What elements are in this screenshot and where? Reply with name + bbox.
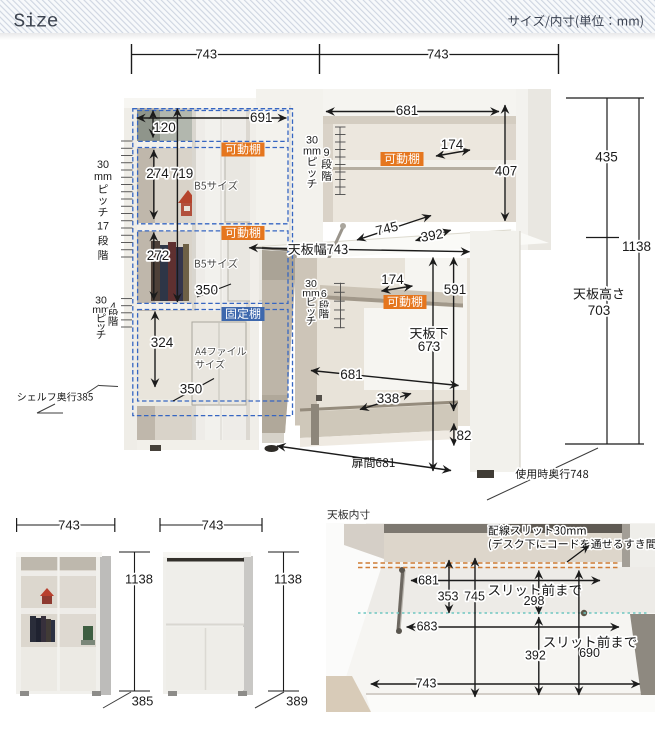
- svg-text:743: 743: [202, 518, 224, 533]
- svg-text:mm: mm: [303, 146, 321, 158]
- svg-text:298: 298: [524, 594, 545, 608]
- svg-text:120: 120: [153, 120, 176, 135]
- svg-text:435: 435: [595, 150, 618, 165]
- svg-text:82: 82: [456, 428, 471, 443]
- svg-text:6: 6: [321, 288, 327, 300]
- svg-text:389: 389: [286, 694, 308, 709]
- svg-text:mm: mm: [94, 171, 112, 183]
- svg-text:743: 743: [416, 677, 437, 691]
- svg-text:703: 703: [588, 303, 611, 318]
- svg-text:681: 681: [396, 103, 419, 118]
- svg-text:743: 743: [195, 47, 217, 62]
- svg-text:407: 407: [495, 164, 518, 179]
- svg-text:338: 338: [377, 391, 400, 406]
- svg-text:392: 392: [525, 649, 546, 663]
- svg-text:681: 681: [418, 574, 439, 588]
- svg-text:17: 17: [97, 221, 109, 233]
- svg-text:683: 683: [417, 620, 438, 634]
- svg-text:385: 385: [132, 694, 154, 709]
- svg-text:673: 673: [418, 339, 441, 354]
- svg-text:Size: Size: [14, 11, 58, 33]
- svg-text:591: 591: [444, 282, 467, 297]
- svg-text:350: 350: [180, 381, 203, 396]
- svg-text:743: 743: [58, 518, 80, 533]
- svg-text:mm: mm: [302, 288, 320, 300]
- svg-text:174: 174: [381, 272, 404, 287]
- svg-text:30: 30: [97, 159, 109, 171]
- svg-text:350: 350: [195, 283, 218, 298]
- svg-text:272: 272: [147, 248, 170, 263]
- svg-text:1138: 1138: [622, 239, 651, 254]
- svg-text:743: 743: [427, 47, 449, 62]
- svg-text:174: 174: [441, 137, 464, 152]
- svg-text:324: 324: [151, 335, 174, 350]
- svg-text:274: 274: [146, 166, 169, 181]
- svg-text:1138: 1138: [274, 572, 302, 587]
- svg-text:353: 353: [438, 590, 459, 604]
- svg-text:9: 9: [323, 147, 329, 159]
- svg-text:690: 690: [579, 646, 600, 660]
- svg-text:1138: 1138: [125, 572, 153, 587]
- svg-text:681: 681: [340, 367, 363, 382]
- svg-text:745: 745: [464, 590, 485, 604]
- svg-text:719: 719: [171, 166, 194, 181]
- svg-text:691: 691: [250, 110, 273, 125]
- svg-text:mm: mm: [92, 304, 110, 316]
